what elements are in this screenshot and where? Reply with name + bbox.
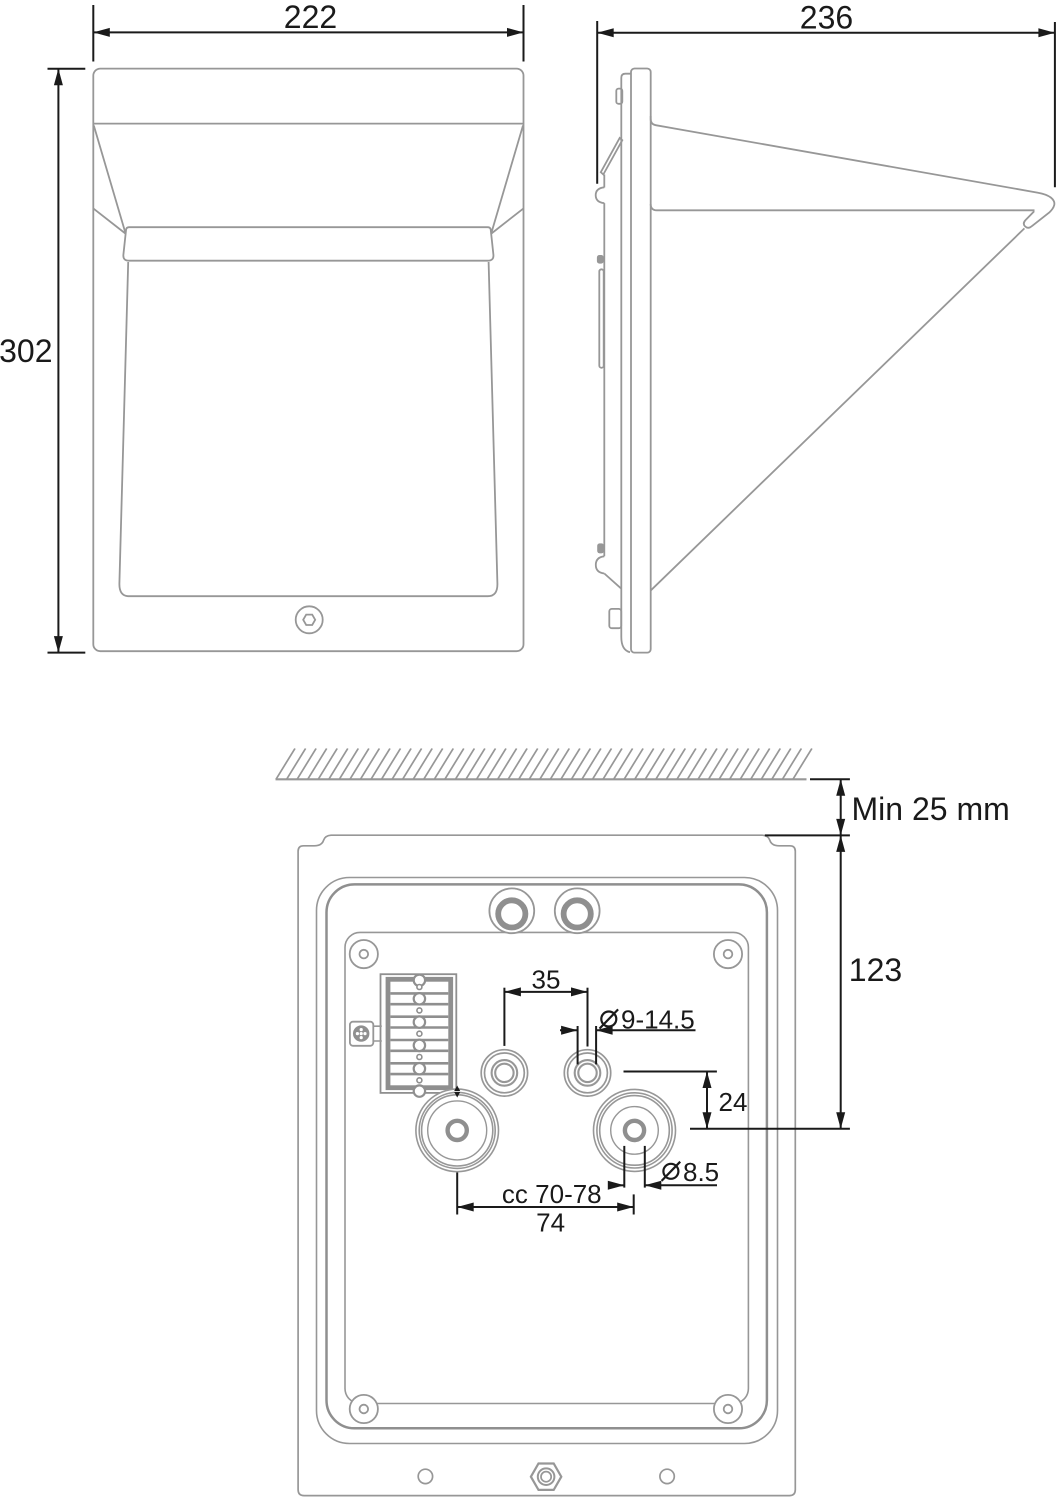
- svg-text:222: 222: [284, 0, 337, 35]
- svg-text:302: 302: [0, 333, 53, 369]
- svg-text:cc 70-78: cc 70-78: [502, 1179, 602, 1209]
- svg-text:236: 236: [800, 0, 853, 35]
- svg-text:24: 24: [719, 1087, 748, 1117]
- svg-text:9-14.5: 9-14.5: [621, 1005, 695, 1035]
- svg-text:74: 74: [536, 1208, 565, 1238]
- svg-text:123: 123: [849, 952, 902, 988]
- svg-text:35: 35: [532, 965, 561, 995]
- svg-text:8.5: 8.5: [683, 1157, 719, 1187]
- svg-text:Min 25 mm: Min 25 mm: [852, 791, 1010, 827]
